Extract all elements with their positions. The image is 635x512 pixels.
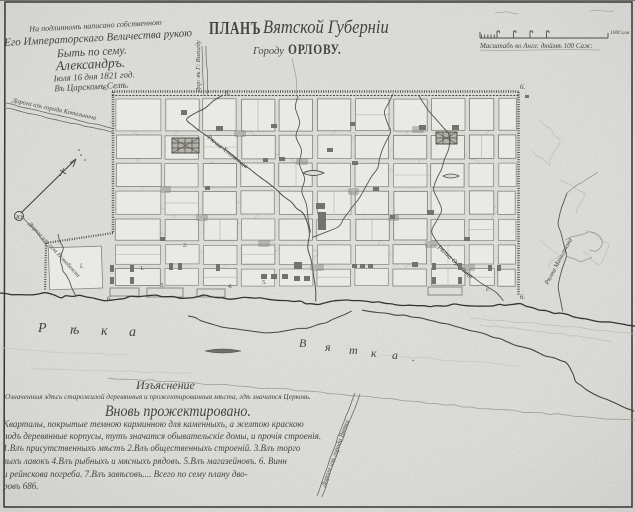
svg-text:к: к <box>371 346 377 360</box>
svg-text:1.Влъ присутственныхъ мѣстъ 2.: 1.Влъ присутственныхъ мѣстъ 2.Влъ общест… <box>3 443 301 453</box>
svg-text:и рейнскова погреба. 7.Влъ зав: и рейнскова погреба. 7.Влъ завѣсовъ.... … <box>3 469 248 479</box>
svg-text:я: я <box>324 340 331 354</box>
svg-text:6.: 6. <box>103 84 109 92</box>
svg-text:6.: 6. <box>520 293 526 301</box>
svg-text:6.: 6. <box>520 83 526 91</box>
svg-text:Вновь прожектировано.: Вновь прожектировано. <box>105 403 251 420</box>
svg-text:а: а <box>129 325 136 340</box>
svg-text:т: т <box>349 343 358 357</box>
svg-text:Масштабъ во Англ: дюймѣ 100 Са: Масштабъ во Англ: дюймѣ 100 Саж: <box>479 42 593 50</box>
svg-text:Дор: въ Г: Вологду: Дор: въ Г: Вологду <box>195 40 202 93</box>
svg-text:4.: 4. <box>228 283 233 290</box>
svg-text:ѣ: ѣ <box>70 323 79 338</box>
svg-text:выхъ лавокъ 4.Влъ рыбныхъ и мя: выхъ лавокъ 4.Влъ рыбныхъ и мясныхъ рядо… <box>3 456 287 466</box>
svg-text:100Саж: 100Саж <box>610 30 631 36</box>
svg-text:6.: 6. <box>107 295 113 303</box>
svg-text:2.: 2. <box>183 243 188 249</box>
svg-text:Ю: Ю <box>15 215 23 221</box>
svg-text:Городу: Городу <box>252 46 284 57</box>
svg-text:Кварталы, покрытые темною карм: Кварталы, покрытые темною карминною для … <box>2 419 304 429</box>
svg-text:Означенныя здѣсь старожилой де: Означенныя здѣсь старожилой деревянныя и… <box>5 392 311 401</box>
svg-text:а: а <box>392 348 398 362</box>
svg-text:В: В <box>299 336 307 350</box>
svg-text:подъ деревянные корпусы, тутъ: подъ деревянные корпусы, тутъ значатся о… <box>3 431 321 441</box>
svg-text:к: к <box>101 324 108 339</box>
svg-text:Р: Р <box>37 321 47 336</box>
svg-text:с.: с. <box>486 287 490 293</box>
svg-text:6.: 6. <box>225 89 231 97</box>
svg-text:5.: 5. <box>262 280 267 286</box>
svg-text:Вятской Губерніи: Вятской Губерніи <box>263 16 389 37</box>
svg-text:.: . <box>412 350 415 364</box>
svg-text:3.: 3. <box>159 283 165 289</box>
svg-text:ОРЛОВУ.: ОРЛОВУ. <box>288 41 342 58</box>
svg-text:ПЛАНЪ: ПЛАНЪ <box>209 19 261 38</box>
svg-text:і.: і. <box>80 262 84 270</box>
svg-text:Изъяснение: Изъяснение <box>135 378 196 392</box>
svg-text:ровъ 686.: ровъ 686. <box>2 481 38 491</box>
svg-text:1.: 1. <box>140 266 145 272</box>
